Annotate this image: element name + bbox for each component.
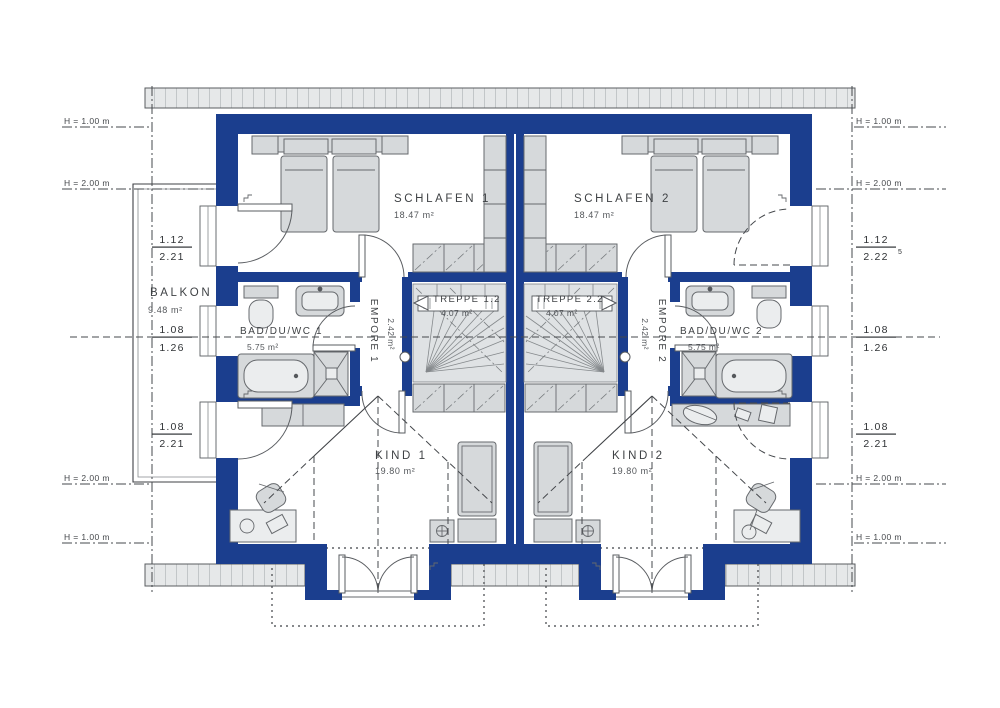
room-label-bad1: BAD/DU/WC 1 [240, 326, 323, 337]
height-mark: H = 2.00 m [856, 178, 902, 188]
toilet-icon [244, 286, 278, 328]
svg-text:2.21: 2.21 [863, 438, 888, 450]
room-label-kind1: KIND 1 [375, 450, 428, 462]
shower-icon [314, 352, 348, 396]
washbasin-icon [296, 286, 344, 316]
dimension-right-window-bad: 1.08 1.26 [856, 324, 896, 354]
closet-kind1 [413, 384, 505, 412]
height-mark: H = 2.00 m [64, 178, 110, 188]
svg-text:2.21: 2.21 [159, 438, 184, 450]
plant-table [430, 520, 454, 542]
room-label-empore2: EMPORE 2 [656, 299, 667, 363]
door-schlafen2 [626, 235, 671, 277]
room-area-kind1: 19.80 m² [375, 466, 415, 476]
door-kind2 [625, 391, 668, 433]
dimension-left-door-schlafen: 1.12 2.21 [152, 234, 192, 263]
room-area-balkon: 9.48 m² [148, 305, 183, 315]
room-area-kind2: 19.80 m² [612, 466, 652, 476]
bed-schlafen1 [252, 136, 408, 232]
opening-mark [778, 195, 786, 202]
height-mark: H = 2.00 m [856, 473, 902, 483]
floorplan-drawing: SCHLAFEN 1 18.47 m² SCHLAFEN 2 18.47 m² … [0, 0, 1000, 708]
closet-kind2 [525, 384, 617, 412]
room-label-empore1: EMPORE 1 [368, 299, 379, 363]
detector-empore2 [620, 352, 630, 362]
svg-text:2.21: 2.21 [159, 251, 184, 263]
wardrobe-schlafen2 [524, 136, 546, 272]
svg-text:5: 5 [898, 249, 902, 256]
detector-empore1 [400, 352, 410, 362]
svg-text:1.26: 1.26 [863, 342, 888, 354]
room-area-schlafen2: 18.47 m² [574, 210, 614, 220]
kind1-door-frame [200, 402, 216, 458]
dimension-right-window-schlafen: 1.12 2.22 5 [856, 234, 902, 263]
desk [734, 510, 800, 542]
room-label-bad2: BAD/DU/WC 2 [680, 326, 763, 337]
shower-icon [682, 352, 716, 396]
room-label-kind2: KIND 2 [612, 450, 665, 462]
height-mark: H = 2.00 m [64, 473, 110, 483]
long-desk [672, 402, 790, 428]
room-label-treppe2: TREPPE 2.2 [536, 294, 604, 305]
svg-text:1.08: 1.08 [863, 324, 888, 336]
bed-icon [534, 442, 572, 542]
svg-text:1.08: 1.08 [159, 324, 184, 336]
dimension-left-door-kind: 1.08 2.21 [152, 421, 192, 450]
svg-text:1.08: 1.08 [863, 421, 888, 433]
kind1-furniture [230, 404, 496, 542]
room-label-schlafen2: SCHLAFEN 2 [574, 193, 671, 205]
kind2-furniture [534, 402, 800, 542]
toilet-icon [752, 286, 786, 328]
bath2-window-frame [812, 306, 828, 356]
door-kind1 [362, 391, 405, 433]
room-area-treppe1: 4.07 m² [441, 308, 473, 318]
schlafen2-window-frame [812, 206, 828, 266]
svg-text:1.12: 1.12 [159, 234, 184, 246]
door-schlafen1 [359, 235, 404, 277]
room-area-treppe2: 4.07 m² [546, 308, 578, 318]
bed-icon [458, 442, 496, 542]
balcony-door-frame [200, 206, 216, 266]
room-label-schlafen1: SCHLAFEN 1 [394, 193, 491, 205]
height-mark: H = 1.00 m [64, 116, 110, 126]
room-area-bad1: 5.75 m² [247, 342, 279, 352]
desk [230, 510, 296, 542]
room-label-treppe1: TREPPE 1.2 [433, 294, 501, 305]
room-area-empore1: 2.42 m² [386, 318, 396, 350]
room-area-bad2: 5.75 m² [688, 342, 720, 352]
floorplan-page: SCHLAFEN 1 18.47 m² SCHLAFEN 2 18.47 m² … [0, 0, 1000, 708]
opening-mark [244, 195, 252, 202]
room-label-balkon: BALKON [150, 287, 212, 299]
dimension-left-window-bad: 1.08 1.26 [152, 324, 192, 354]
bed-schlafen2 [622, 136, 778, 232]
svg-text:1.08: 1.08 [159, 421, 184, 433]
room-area-schlafen1: 18.47 m² [394, 210, 434, 220]
height-mark: H = 1.00 m [64, 532, 110, 542]
bath1-window-frame [200, 306, 216, 356]
room-area-empore2: 2.42 m² [640, 318, 650, 350]
height-mark: H = 1.00 m [856, 116, 902, 126]
washbasin-icon [686, 286, 734, 316]
svg-text:1.12: 1.12 [863, 234, 888, 246]
dimension-right-window-kind: 1.08 2.21 [856, 421, 896, 450]
kind2-window-frame [812, 402, 828, 458]
svg-text:1.26: 1.26 [159, 342, 184, 354]
height-mark: H = 1.00 m [856, 532, 902, 542]
svg-text:2.22: 2.22 [863, 251, 888, 263]
plant-table [576, 520, 600, 542]
